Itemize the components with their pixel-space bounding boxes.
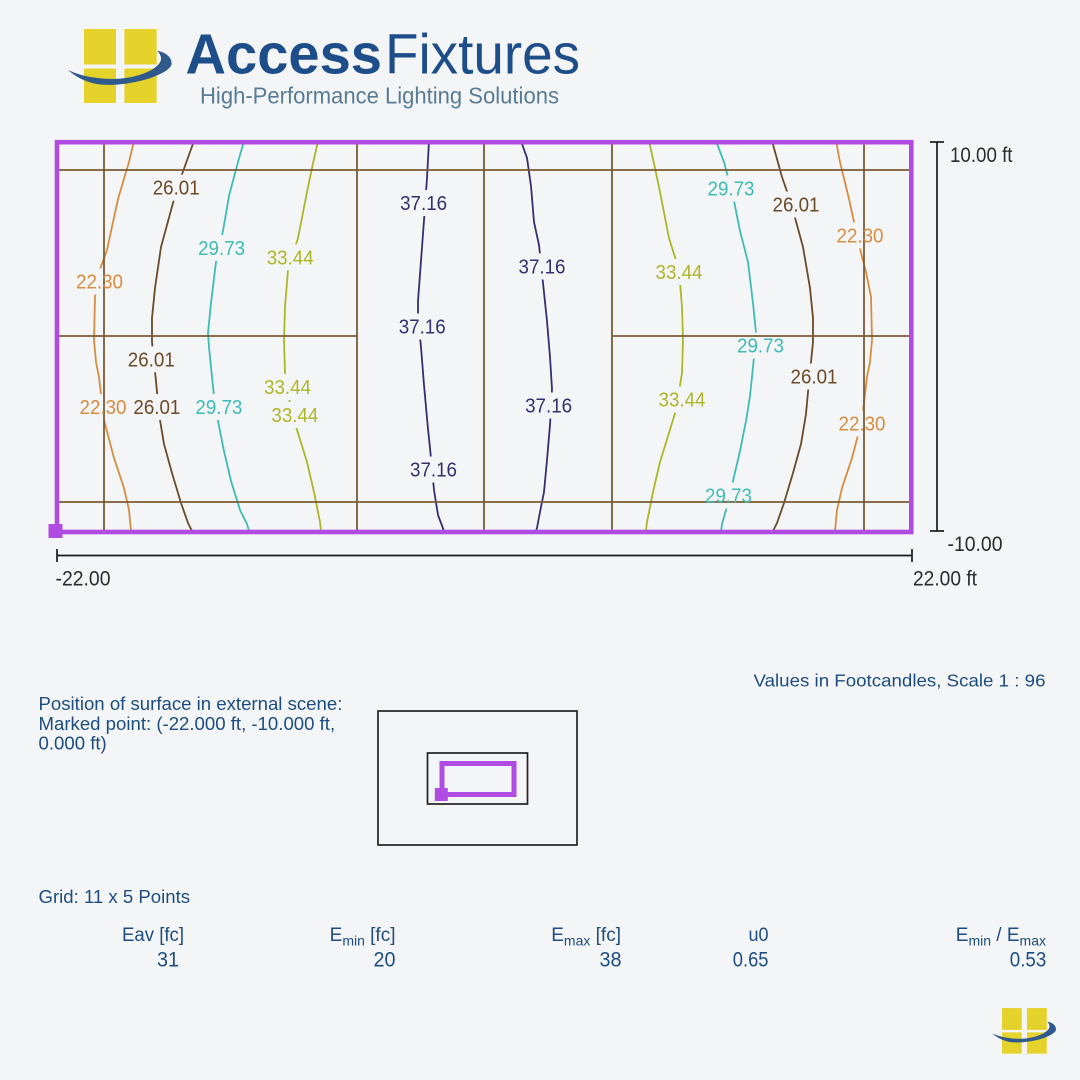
svg-text:29.73: 29.73 [705,486,752,508]
svg-text:0.65: 0.65 [733,949,769,972]
svg-text:Eav [fc]: Eav [fc] [122,925,184,946]
svg-text:Values in Footcandles, Scale 1: Values in Footcandles, Scale 1 : 96 [754,671,1046,691]
svg-text:20: 20 [374,949,396,972]
svg-text:Fixtures: Fixtures [385,23,580,87]
svg-text:Access: Access [186,23,383,87]
svg-text:u0: u0 [749,925,769,946]
svg-text:29.73: 29.73 [195,397,242,419]
svg-text:33.44: 33.44 [267,247,314,269]
svg-text:-22.00: -22.00 [56,566,111,590]
svg-text:37.16: 37.16 [399,317,446,339]
svg-text:High-Performance Lighting Solu: High-Performance Lighting Solutions [200,83,559,109]
svg-text:29.73: 29.73 [737,336,784,358]
svg-text:38: 38 [600,949,622,972]
svg-text:26.01: 26.01 [133,397,180,419]
svg-text:0.000 ft): 0.000 ft) [39,733,107,754]
svg-text:37.16: 37.16 [410,460,457,482]
svg-text:22.00 ft: 22.00 ft [913,566,977,590]
svg-text:37.16: 37.16 [400,193,447,215]
svg-text:29.73: 29.73 [198,238,245,260]
svg-text:31: 31 [157,949,179,972]
svg-text:22.30: 22.30 [76,272,123,294]
svg-text:-10.00: -10.00 [948,532,1003,556]
svg-text:33.44: 33.44 [264,377,311,399]
svg-text:22.30: 22.30 [837,226,884,248]
svg-text:26.01: 26.01 [773,195,820,217]
svg-text:22.30: 22.30 [839,414,886,436]
svg-text:33.44: 33.44 [656,262,703,284]
svg-text:26.01: 26.01 [128,349,175,371]
svg-text:Grid: 11 x 5 Points: Grid: 11 x 5 Points [39,886,191,907]
svg-text:Position of surface in externa: Position of surface in external scene: [39,693,343,714]
svg-text:33.44: 33.44 [271,405,318,427]
svg-text:33.44: 33.44 [659,390,706,412]
svg-text:26.01: 26.01 [791,367,838,389]
svg-text:37.16: 37.16 [525,396,572,418]
svg-text:26.01: 26.01 [153,178,200,200]
svg-text:37.16: 37.16 [519,257,566,279]
svg-text:Marked point: (-22.000 ft, -10: Marked point: (-22.000 ft, -10.000 ft, [39,713,336,734]
svg-text:10.00 ft: 10.00 ft [950,143,1013,167]
svg-text:22.30: 22.30 [80,397,127,419]
svg-text:0.53: 0.53 [1010,949,1047,972]
svg-text:29.73: 29.73 [708,179,755,201]
